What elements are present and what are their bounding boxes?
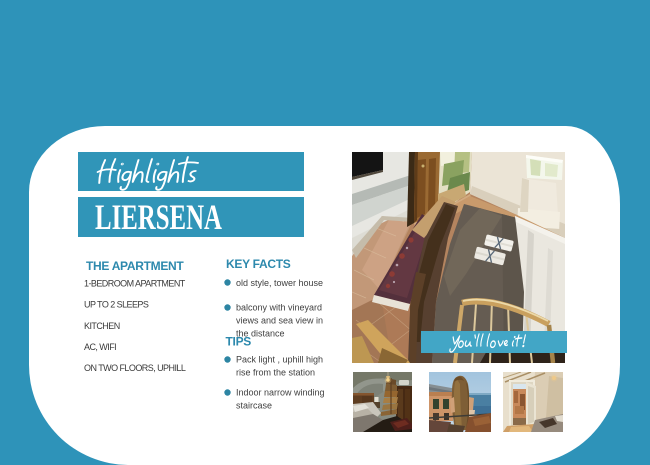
svg-text:Pack light , uphill high: Pack light , uphill high (236, 355, 323, 365)
svg-text:ON TWO FLOORS, UPHILL: ON TWO FLOORS, UPHILL (84, 363, 186, 373)
svg-text:Indoor narrow winding: Indoor narrow winding (236, 388, 325, 398)
svg-text:1-BEDROOM APARTMENT: 1-BEDROOM APARTMENT (84, 279, 186, 289)
svg-text:views and sea view in: views and sea view in (236, 316, 323, 326)
svg-text:KEY FACTS: KEY FACTS (226, 257, 291, 271)
svg-text:TIPS: TIPS (226, 335, 252, 349)
svg-text:UP TO 2 SLEEPS: UP TO 2 SLEEPS (84, 300, 149, 310)
svg-text:THE APARTMENT: THE APARTMENT (86, 259, 184, 273)
svg-text:LIERSENA: LIERSENA (95, 197, 222, 237)
svg-text:balcony with vineyard: balcony with vineyard (236, 303, 322, 313)
svg-text:old style, tower house: old style, tower house (236, 278, 323, 288)
svg-text:rise from the station: rise from the station (236, 368, 315, 378)
svg-text:staircase: staircase (236, 401, 272, 411)
svg-text:KITCHEN: KITCHEN (84, 321, 120, 331)
svg-text:AC, WIFI: AC, WIFI (84, 342, 116, 352)
